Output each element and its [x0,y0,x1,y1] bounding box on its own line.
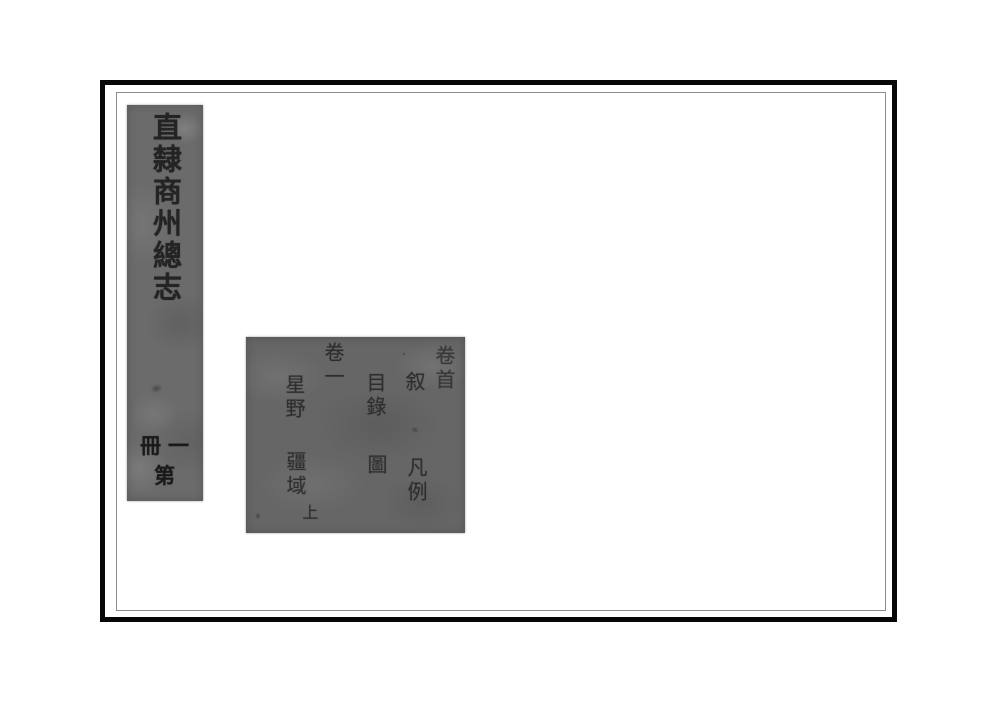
ink-speck [255,512,261,520]
ink-speck [410,426,420,434]
contents-fragment-block: 卷首 叙 凡例 目錄 圖 卷一 星野 疆域 上 [246,337,465,533]
toc-entry-jiangyu: 疆域 [283,451,306,499]
page-inner-rule [116,92,886,611]
toc-entry-xingye: 星野 [282,374,305,422]
spine-title-slip: 直隸商州總志 冊一第 [127,105,203,501]
ink-speck [402,352,406,356]
toc-entry-shang: 上 [299,504,317,524]
volume-number-label: 冊一第 [130,430,206,490]
toc-entry-mulu: 目錄 [363,372,386,420]
toc-entry-juanshou: 卷首 [432,345,455,393]
book-title-vertical: 直隸商州總志 [151,112,180,304]
toc-entry-xu: 叙 [402,371,425,395]
toc-entry-juanyi: 卷一 [321,342,344,390]
toc-entry-fanli: 凡例 [404,457,427,505]
toc-entry-tu: 圖 [364,454,387,478]
ink-speck [149,382,164,395]
scanned-book-page: 直隸商州總志 冊一第 卷首 叙 凡例 目錄 圖 卷一 星野 疆域 上 [0,0,1000,706]
